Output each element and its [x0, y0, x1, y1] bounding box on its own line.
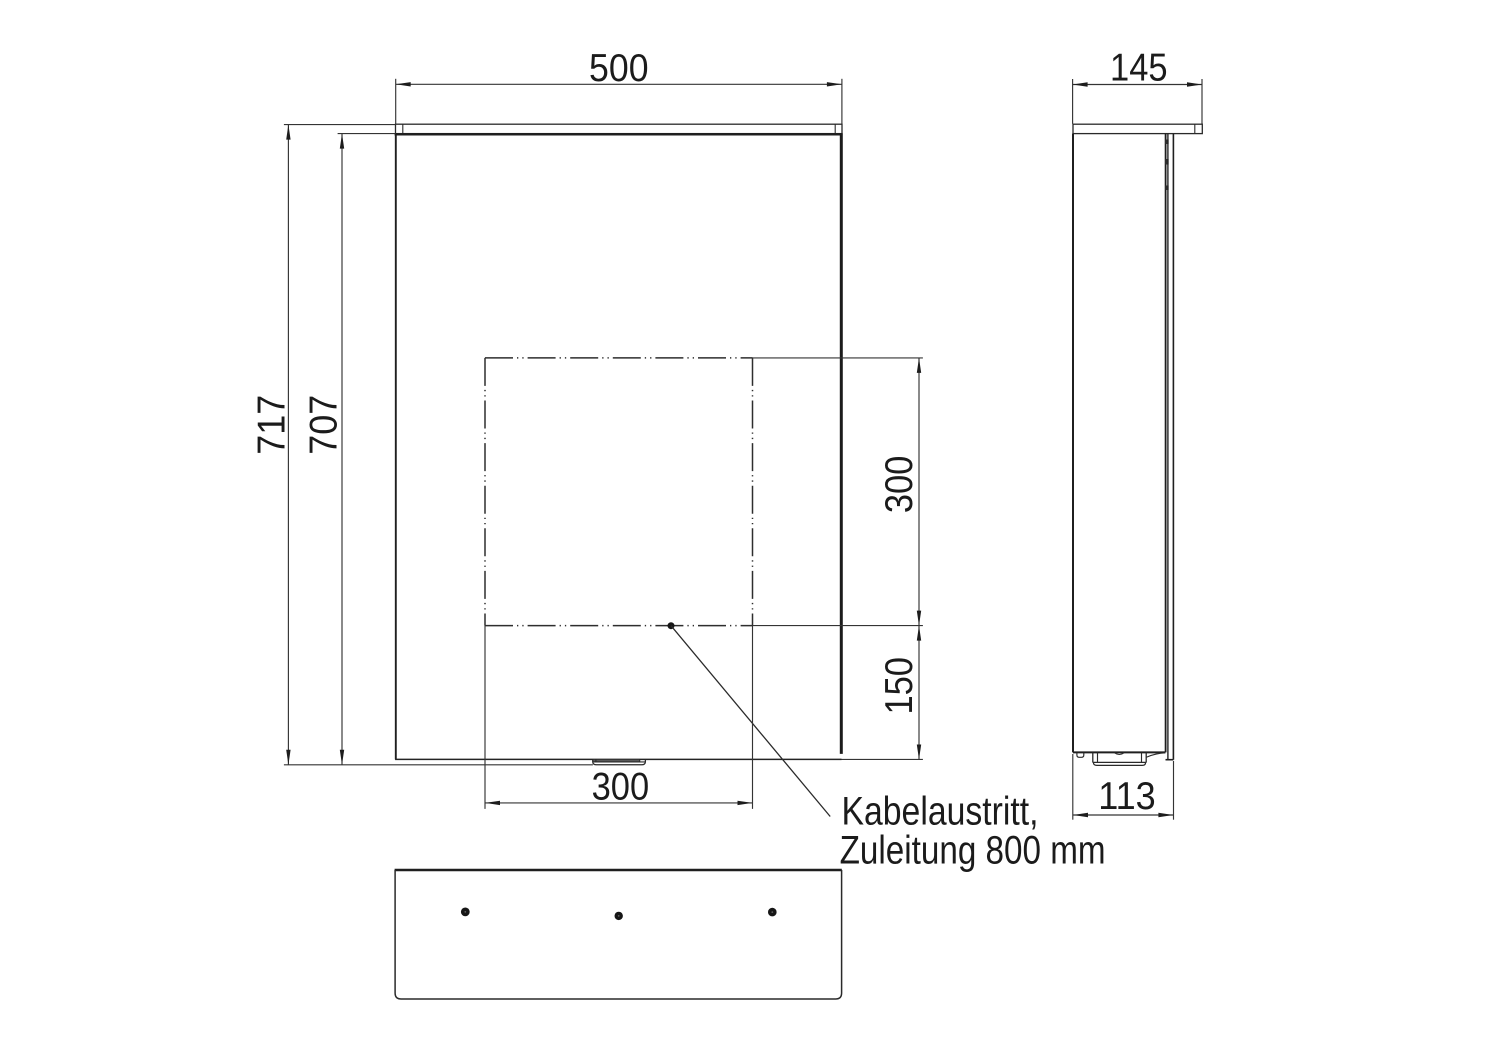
svg-text:Kabelaustritt,: Kabelaustritt, [842, 789, 1039, 833]
svg-text:300: 300 [878, 456, 921, 514]
svg-text:Zuleitung 800 mm: Zuleitung 800 mm [840, 828, 1106, 872]
svg-text:717: 717 [250, 395, 293, 455]
svg-text:150: 150 [878, 657, 921, 715]
svg-text:145: 145 [1110, 46, 1168, 89]
svg-text:300: 300 [592, 766, 650, 809]
svg-text:113: 113 [1098, 775, 1156, 818]
svg-text:707: 707 [303, 395, 346, 455]
svg-text:500: 500 [589, 47, 649, 90]
